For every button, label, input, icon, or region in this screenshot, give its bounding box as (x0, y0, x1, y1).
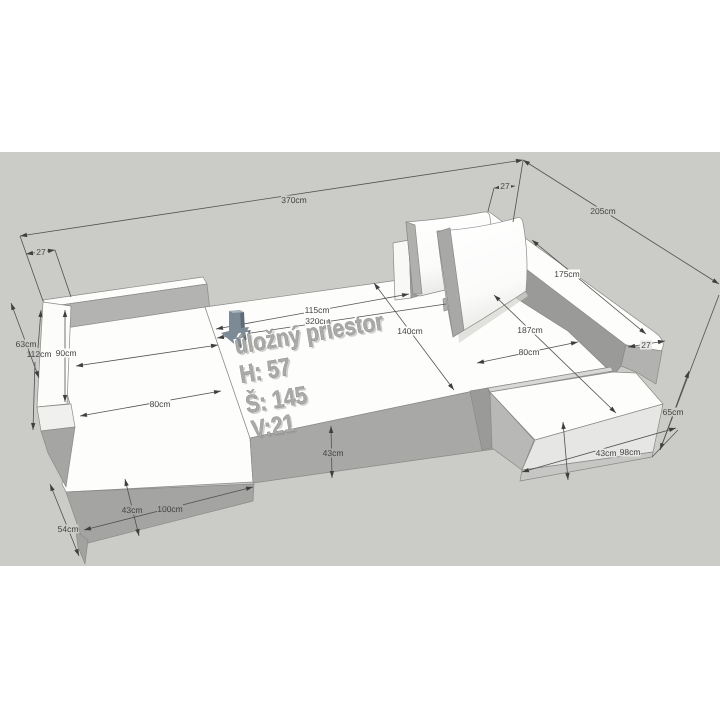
svg-text:175cm: 175cm (554, 269, 580, 279)
svg-text:27: 27 (36, 247, 46, 257)
svg-text:98cm: 98cm (620, 447, 641, 457)
svg-text:187cm: 187cm (517, 325, 543, 335)
svg-text:112cm: 112cm (27, 349, 52, 359)
svg-text:370cm: 370cm (281, 195, 307, 205)
svg-text:90cm: 90cm (56, 348, 77, 358)
svg-text:43cm: 43cm (596, 448, 617, 458)
svg-text:140cm: 140cm (397, 326, 423, 336)
svg-text:205cm: 205cm (590, 206, 616, 216)
svg-text:63cm: 63cm (16, 339, 37, 349)
svg-text:27: 27 (641, 340, 651, 350)
svg-text:100cm: 100cm (157, 504, 183, 514)
svg-text:65cm: 65cm (663, 407, 684, 417)
svg-text:80cm: 80cm (150, 399, 171, 409)
svg-text:27: 27 (500, 181, 510, 191)
svg-text:54cm: 54cm (58, 524, 79, 534)
svg-text:115cm: 115cm (305, 305, 330, 315)
svg-text:43cm: 43cm (323, 448, 344, 458)
svg-text:43cm: 43cm (122, 505, 143, 515)
svg-text:80cm: 80cm (519, 347, 540, 357)
